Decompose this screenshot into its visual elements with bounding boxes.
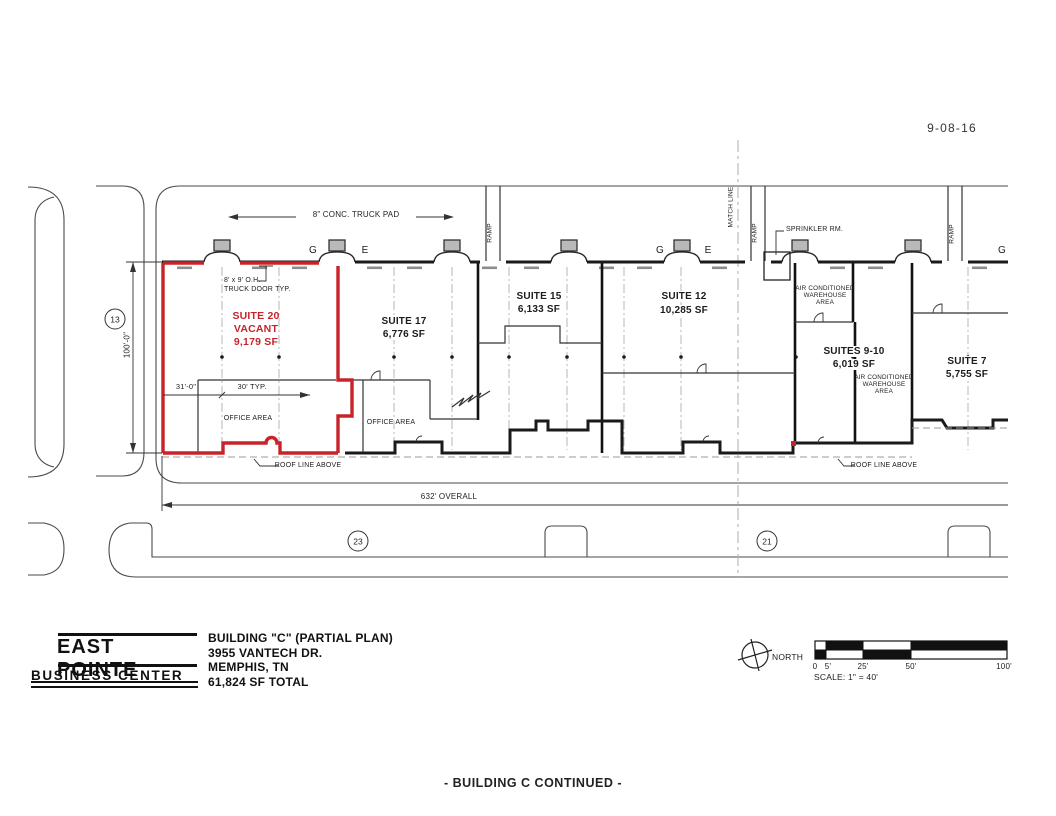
- suite-20-area: 9,179 SF: [232, 337, 280, 349]
- truck-pad-note: 8" CONC. TRUCK PAD: [313, 211, 400, 220]
- dock-door: [782, 240, 845, 269]
- keynote-21: 21: [757, 531, 778, 552]
- suite-20-label: SUITE 20: [230, 311, 281, 323]
- truck-door-note-line2: TRUCK DOOR TYP.: [224, 286, 291, 294]
- north-label: NORTH: [772, 653, 803, 663]
- dock-doors: [177, 240, 987, 269]
- sheet-footer-note: - BUILDING C CONTINUED -: [444, 776, 622, 790]
- dock-door: [868, 240, 987, 269]
- ramp-label: RAMP: [486, 223, 493, 243]
- suite-7-area: 5,755 SF: [944, 369, 990, 380]
- total-area: 61,824 SF TOTAL: [208, 675, 309, 689]
- logo-rule-bottom-1: [31, 681, 198, 683]
- match-line-label: MATCH LINE: [727, 187, 734, 228]
- overall-dimension-label: 632' OVERALL: [421, 493, 477, 502]
- dock-door: [407, 240, 497, 269]
- suites-9-10-area: 6,019 SF: [831, 359, 877, 370]
- suite-15-area: 6,133 SF: [516, 304, 562, 315]
- office-area-label: OFFICE AREA: [224, 415, 273, 423]
- ac-warehouse-label-line1: AIR CONDITIONED: [795, 285, 854, 292]
- truck-door-note-line1: 8' x 9' O.H.: [224, 277, 261, 285]
- ramp-walls: [486, 186, 962, 261]
- suite-20-status: VACANT: [232, 324, 280, 336]
- keynote-23: 23: [348, 531, 369, 552]
- north-arrow-icon: [738, 639, 772, 671]
- keynote-13: 13: [105, 309, 126, 330]
- sprinkler-room-box: [764, 252, 790, 280]
- ac-warehouse-label-line2: WAREHOUSE: [804, 292, 847, 299]
- office-area-label: OFFICE AREA: [367, 419, 416, 427]
- dock-door: [637, 240, 727, 269]
- scale-tick-0: 0: [813, 663, 818, 672]
- suite-7-label: SUITE 7: [945, 356, 988, 367]
- city-state: MEMPHIS, TN: [208, 660, 289, 674]
- door-letter-e: E: [362, 245, 369, 256]
- scale-tick-100: 100': [996, 663, 1012, 672]
- suite-17-area: 6,776 SF: [381, 329, 427, 340]
- roof-line-note: ROOF LINE ABOVE: [275, 462, 341, 470]
- roof-line-note: ROOF LINE ABOVE: [851, 462, 917, 470]
- bay-dimension-typ: 30' TYP.: [237, 383, 266, 391]
- suite-12-area: 10,285 SF: [658, 305, 710, 316]
- bay-dimension-first: 31'-0": [176, 383, 196, 391]
- suite-17-label: SUITE 17: [380, 316, 429, 327]
- suite-15-label: SUITE 15: [515, 291, 564, 302]
- dock-door: [177, 240, 267, 269]
- plan-title: BUILDING "C" (PARTIAL PLAN): [208, 631, 393, 645]
- depth-dimension-label: 100'-0": [124, 332, 133, 358]
- floor-plan-sheet: 9-08-16 8" CONC. TRUCK PAD G E G E G 8' …: [0, 0, 1056, 816]
- scale-caption: SCALE: 1" = 40': [814, 673, 878, 683]
- ramp-label: RAMP: [751, 223, 758, 243]
- door-letter-g: G: [309, 245, 317, 256]
- street-address: 3955 VANTECH DR.: [208, 646, 322, 660]
- ac-warehouse-label-line3: AREA: [875, 388, 893, 395]
- sprinkler-room-label: SPRINKLER RM.: [786, 226, 843, 234]
- suites-9-10-label: SUITES 9-10: [821, 346, 886, 357]
- suite-12-label: SUITE 12: [660, 291, 709, 302]
- date-stamp: 9-08-16: [927, 121, 977, 135]
- ac-warehouse-label-line3: AREA: [816, 299, 834, 306]
- scale-tick-50: 50': [905, 663, 916, 672]
- door-letter-g: G: [656, 245, 664, 256]
- ac-warehouse-label-line1: AIR CONDITIONED: [854, 374, 913, 381]
- south-wall: [345, 420, 1008, 453]
- door-letter-e: E: [705, 245, 712, 256]
- plan-linework: [0, 0, 1056, 816]
- dock-door: [524, 240, 614, 269]
- ac-warehouse-label-line2: WAREHOUSE: [863, 381, 906, 388]
- door-letter-g: G: [998, 245, 1006, 256]
- scale-tick-25: 25': [857, 663, 868, 672]
- scale-bar-graphic: [815, 641, 1007, 659]
- ramp-label: RAMP: [948, 224, 955, 244]
- logo-rule-bottom-2: [31, 686, 198, 688]
- logo-rule-mid: [58, 664, 197, 667]
- scale-tick-5: 5': [825, 663, 831, 672]
